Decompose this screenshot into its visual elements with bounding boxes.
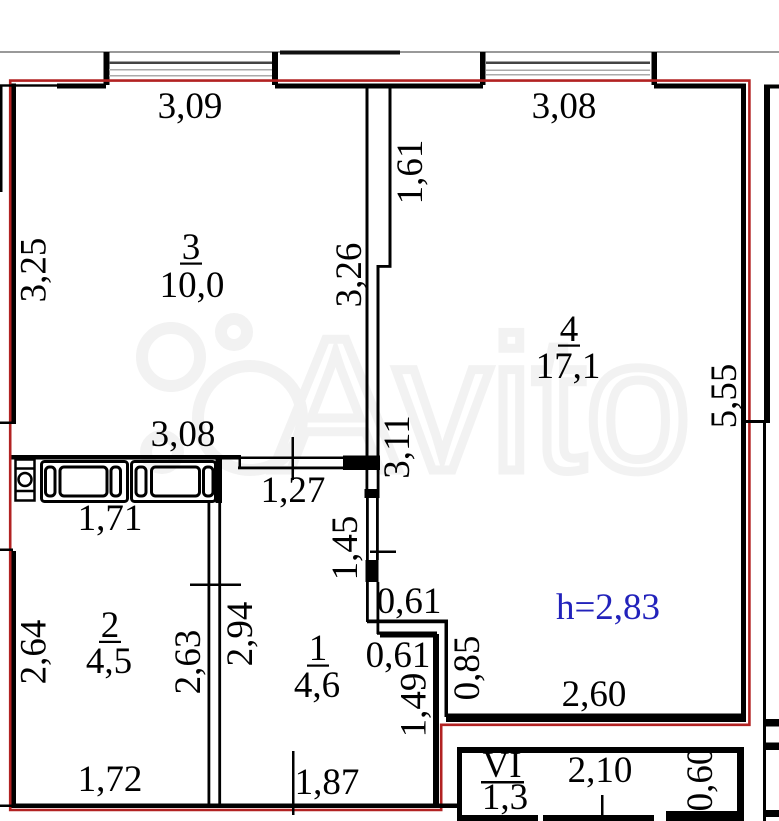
svg-text:1,27: 1,27 [261, 470, 326, 511]
svg-text:0,61: 0,61 [366, 635, 431, 676]
svg-text:3,08: 3,08 [532, 86, 597, 127]
svg-text:Avito: Avito [272, 299, 691, 511]
svg-text:3,25: 3,25 [14, 238, 55, 303]
svg-text:2: 2 [101, 605, 120, 646]
svg-text:1,3: 1,3 [482, 777, 528, 818]
svg-text:1,49: 1,49 [394, 673, 435, 738]
svg-text:1,61: 1,61 [390, 140, 431, 205]
svg-text:3,11: 3,11 [377, 415, 418, 478]
svg-text:3: 3 [182, 227, 201, 268]
svg-text:5,55: 5,55 [704, 364, 745, 429]
svg-text:3,26: 3,26 [329, 243, 370, 308]
svg-text:2,94: 2,94 [220, 602, 261, 667]
svg-text:10,0: 10,0 [160, 265, 225, 306]
svg-text:2,10: 2,10 [568, 750, 633, 791]
svg-text:2,60: 2,60 [562, 674, 627, 715]
svg-text:3,09: 3,09 [158, 86, 223, 127]
svg-text:1,72: 1,72 [78, 759, 143, 800]
svg-text:1,71: 1,71 [78, 498, 143, 539]
svg-text:4,6: 4,6 [294, 665, 340, 706]
svg-text:4: 4 [560, 309, 579, 350]
svg-text:3,08: 3,08 [151, 414, 216, 455]
svg-text:2,63: 2,63 [168, 630, 209, 695]
svg-text:0,60: 0,60 [680, 747, 721, 812]
svg-text:0,85: 0,85 [447, 636, 488, 701]
svg-text:1: 1 [309, 628, 328, 669]
svg-text:1,45: 1,45 [325, 516, 366, 581]
svg-text:1,87: 1,87 [295, 762, 360, 803]
svg-text:h=2,83: h=2,83 [556, 587, 660, 628]
svg-text:0,61: 0,61 [377, 581, 442, 622]
svg-text:4,5: 4,5 [86, 641, 132, 682]
svg-text:2,64: 2,64 [14, 620, 55, 685]
svg-text:17,1: 17,1 [536, 346, 601, 387]
